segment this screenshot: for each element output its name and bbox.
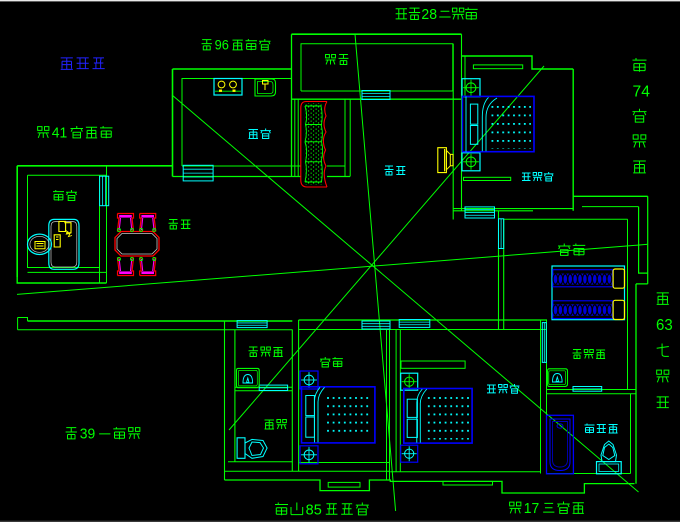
svg-text:39: 39 — [80, 427, 96, 443]
svg-text:63: 63 — [656, 317, 673, 334]
svg-text:74: 74 — [633, 83, 650, 100]
svg-text:17: 17 — [524, 501, 540, 517]
svg-text:41: 41 — [52, 126, 68, 142]
svg-text:96: 96 — [215, 38, 229, 53]
svg-text:85: 85 — [306, 502, 322, 519]
svg-text:28: 28 — [421, 7, 437, 23]
